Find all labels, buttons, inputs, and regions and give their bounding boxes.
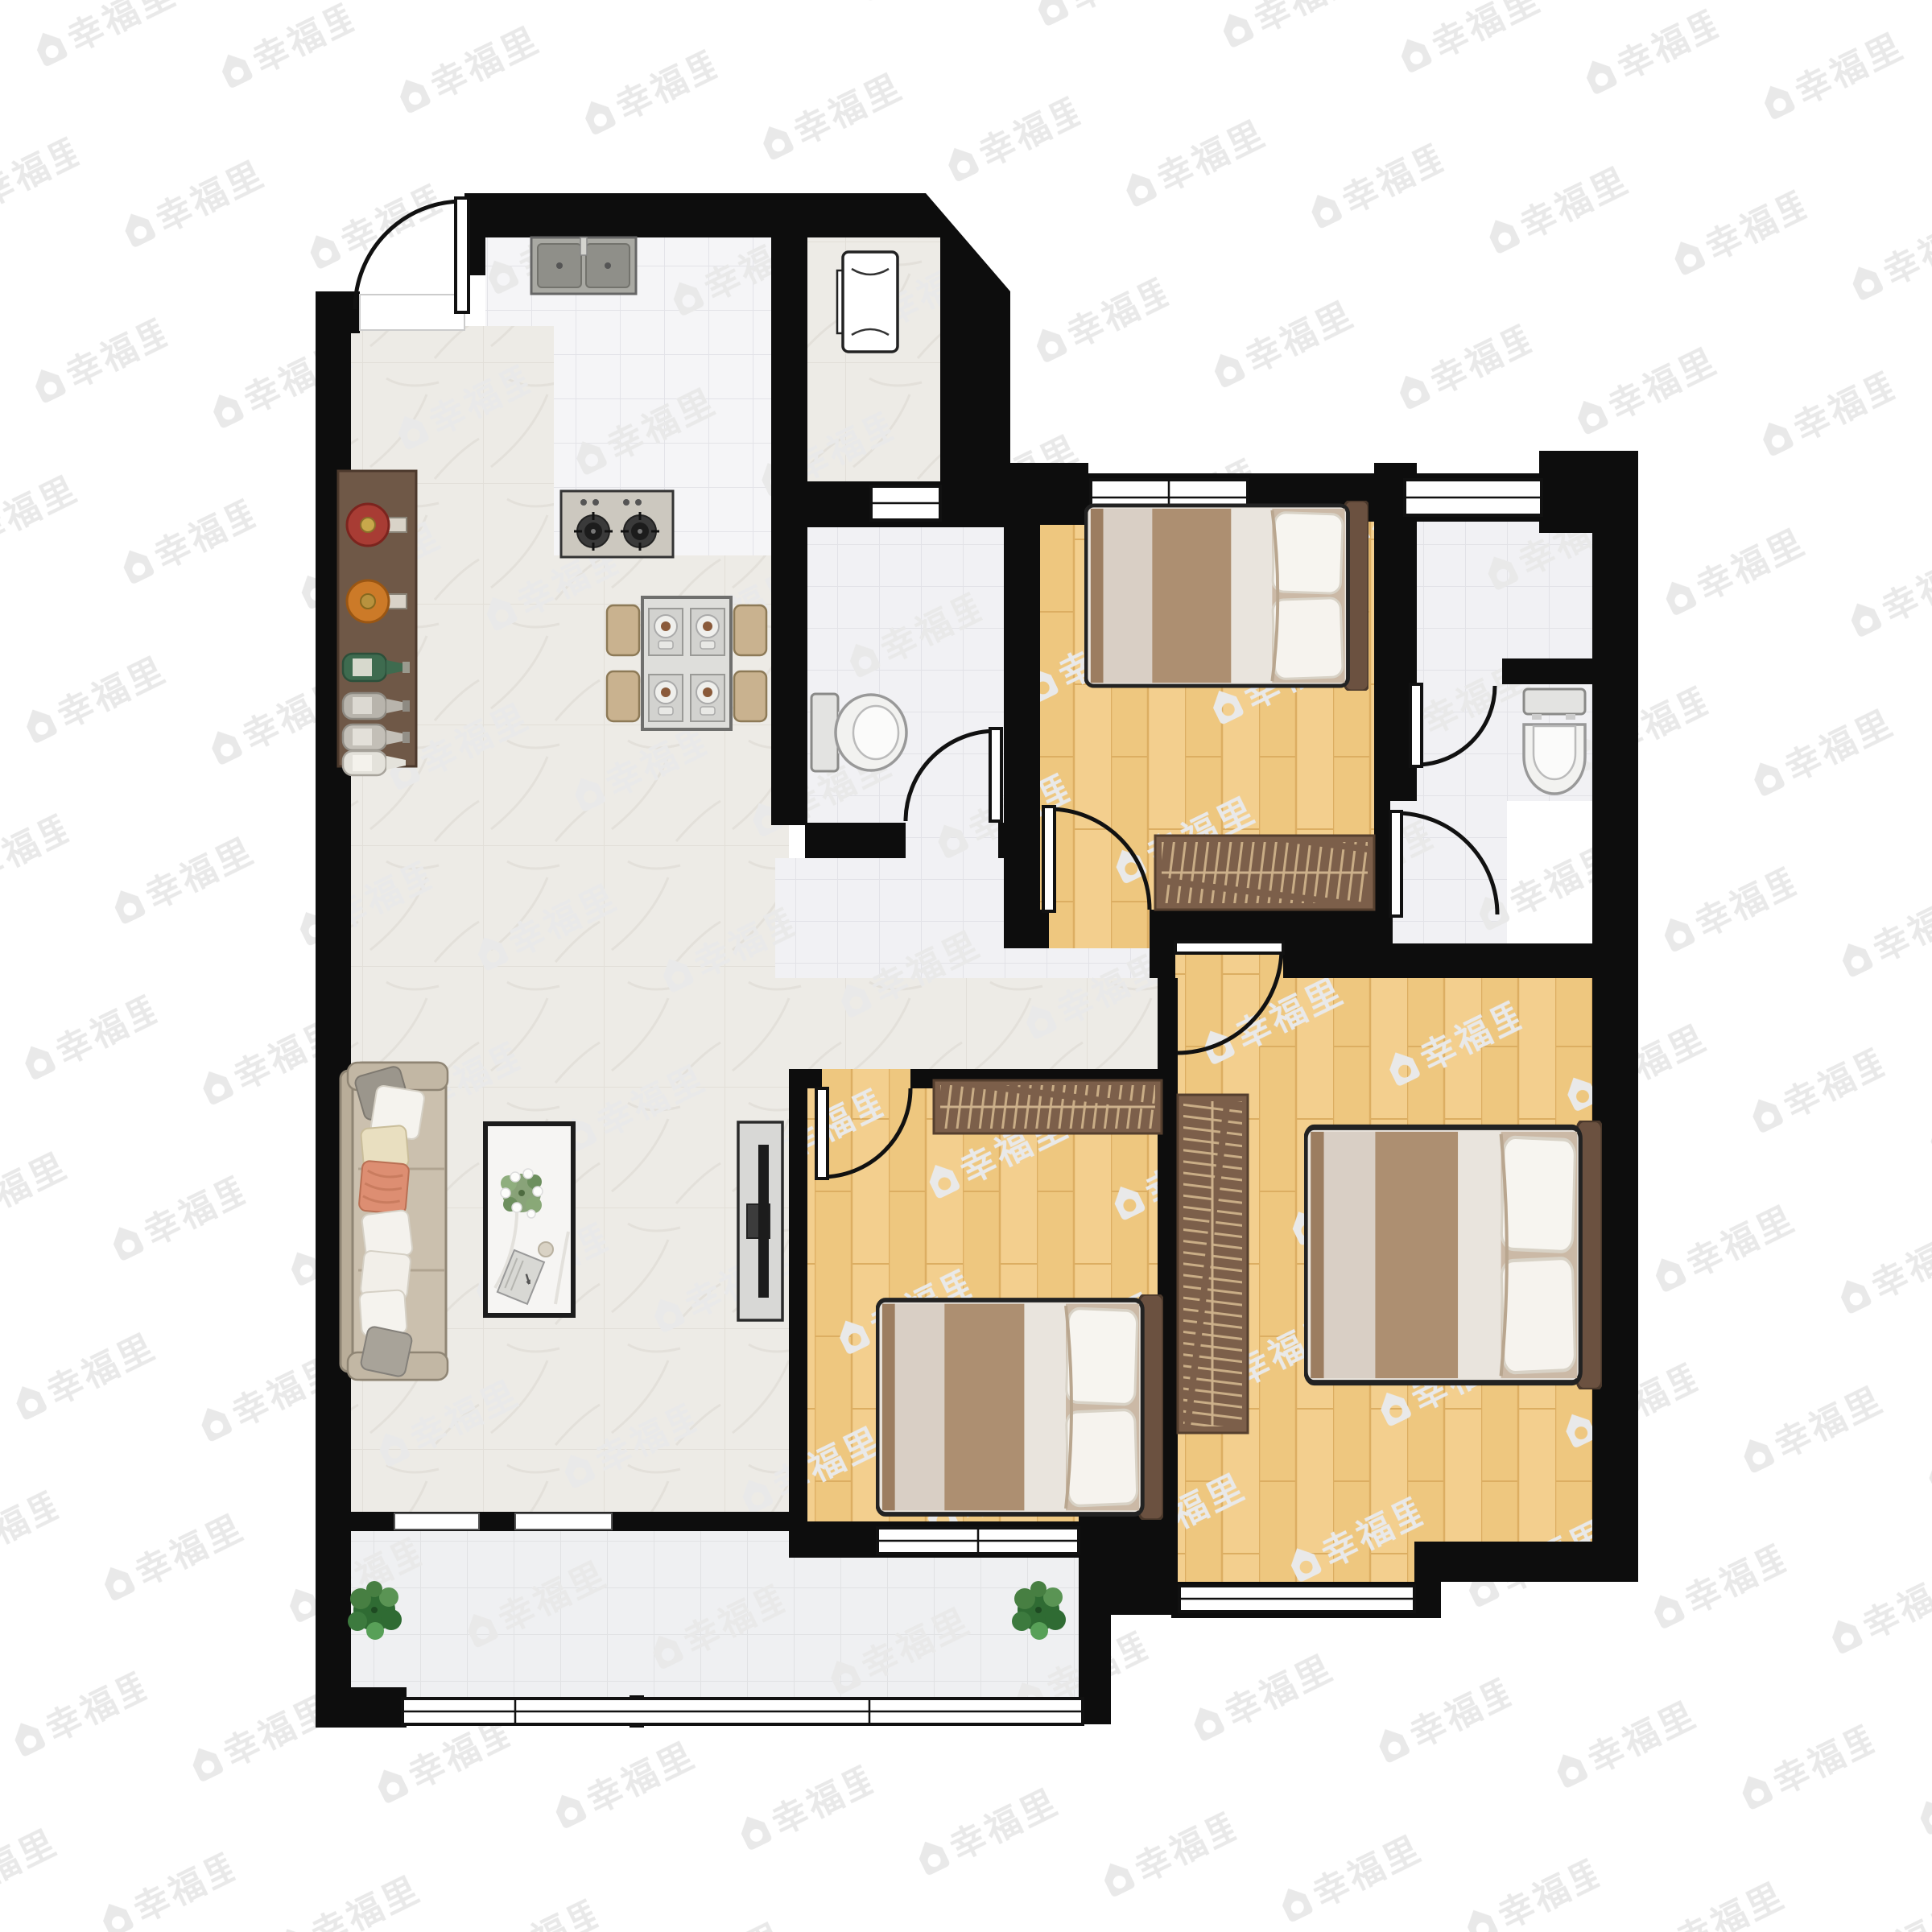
dining-chair <box>607 671 639 721</box>
window-bedroom3-balcony <box>877 1528 1079 1554</box>
wall-master-top <box>1283 943 1638 978</box>
dining-table <box>642 597 731 729</box>
sofa <box>341 1063 448 1380</box>
bathroom2-toilet <box>1524 689 1585 794</box>
threshold-balcony-2 <box>515 1513 612 1529</box>
coffee-table <box>485 1124 573 1315</box>
dining-chair <box>607 605 639 655</box>
window-master-bottom <box>1179 1586 1414 1612</box>
sofa-pillow-gray <box>360 1326 413 1377</box>
place-setting <box>649 675 683 721</box>
wall-entry-stub <box>316 291 360 333</box>
tv <box>758 1145 769 1298</box>
window-bathroom2 <box>1405 480 1542 515</box>
bathroom1-toilet <box>811 694 906 771</box>
threshold-entrance <box>360 295 464 330</box>
washing-machine <box>837 252 898 352</box>
wine-cabinet <box>338 471 416 775</box>
sofa-pillow-coral <box>358 1161 409 1215</box>
dining-chair <box>734 605 766 655</box>
window-nook-bath1 <box>871 486 940 520</box>
place-setting <box>649 609 683 655</box>
wall-right <box>1592 522 1638 1582</box>
floor-plan-canvas: 幸福里 幸福里 <box>0 0 1932 1932</box>
place-setting <box>691 675 724 721</box>
bed-master <box>1306 1121 1602 1389</box>
bed-bedroom3 <box>877 1294 1163 1520</box>
wardrobe-bedroom2 <box>1155 836 1374 910</box>
tv-stand <box>738 1122 782 1320</box>
kitchen-sink <box>531 237 636 294</box>
floor-plan: 幸福里 幸福里 <box>0 0 1932 1932</box>
dining-chair <box>734 671 766 721</box>
wall-bath1-bottom <box>805 823 906 858</box>
wall-kitchen-right <box>771 193 807 825</box>
wardrobe-master <box>1178 1095 1248 1433</box>
window-balcony-bottom <box>402 1699 1083 1724</box>
wall-bath2-divider <box>1502 658 1592 684</box>
wall-bedroom3-left <box>789 1069 807 1558</box>
wall-bedroom2-left <box>1004 463 1040 948</box>
wall-top-kitchen <box>464 193 926 237</box>
threshold-balcony-1 <box>394 1513 479 1529</box>
flower-vase <box>501 1169 543 1218</box>
wardrobe-bedroom3 <box>934 1080 1162 1133</box>
master-furniture <box>1178 1095 1602 1433</box>
place-setting <box>691 609 724 655</box>
bed-bedroom2 <box>1086 501 1368 691</box>
gas-stove <box>561 491 673 557</box>
coaster <box>539 1242 553 1257</box>
wall-balcony-right <box>1079 1512 1111 1724</box>
